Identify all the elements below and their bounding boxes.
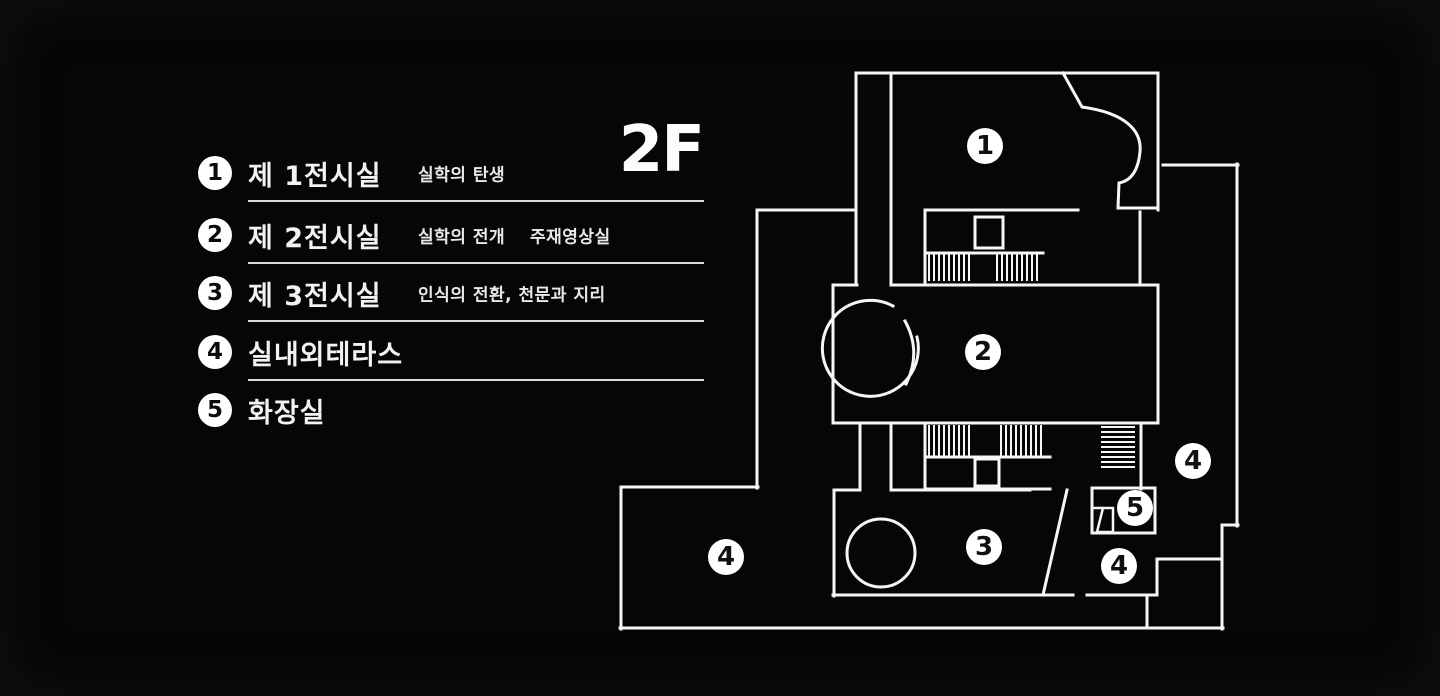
room1-curved-corner-wall xyxy=(1063,73,1158,285)
right-stairs-hatch xyxy=(1102,427,1134,467)
plan-marker-4: 4 xyxy=(1101,548,1137,584)
upper-elevator-box xyxy=(975,217,1003,248)
room3-round-column xyxy=(847,519,915,587)
plan-marker-2: 2 xyxy=(965,334,1001,370)
toilet-fixture xyxy=(1092,508,1113,532)
upper-stairs-hatch-left xyxy=(929,255,969,280)
lower-elevator-box xyxy=(975,459,999,486)
floor-plan-drawing xyxy=(0,0,1440,696)
lower-stairs-hatch-left xyxy=(929,426,969,455)
room2-circular-wall xyxy=(822,300,918,396)
lower-stairs-hatch-right xyxy=(1001,426,1041,455)
plan-marker-3: 3 xyxy=(966,529,1002,565)
upper-stairs-hatch-right xyxy=(997,255,1037,280)
room3-walls xyxy=(833,490,1073,596)
floor-guide-screen: 1제 1전시실실학의 탄생2제 2전시실실학의 전개주재영상실3제 3전시실인식… xyxy=(0,0,1440,696)
left-arm-walls xyxy=(757,210,856,488)
plan-marker-4: 4 xyxy=(1175,443,1211,479)
room2-door-arc xyxy=(905,321,914,384)
plan-marker-5: 5 xyxy=(1117,490,1153,526)
plan-marker-4: 4 xyxy=(708,539,744,575)
plan-marker-1: 1 xyxy=(967,128,1003,164)
